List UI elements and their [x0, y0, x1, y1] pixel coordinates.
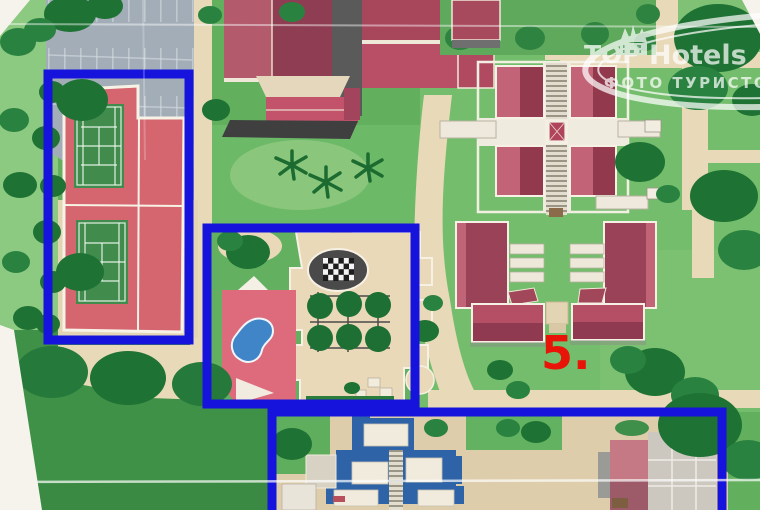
west-wing — [440, 121, 496, 138]
tree-grid-pergola — [307, 291, 391, 352]
path-east-branch — [700, 150, 760, 163]
resort-map-canvas: 5. TOP Hotels ФОТО ТУРИСТОВ — [0, 0, 760, 510]
bush-oval — [615, 420, 649, 436]
pool-leisure-area — [208, 228, 434, 405]
watermark-brand-hotels: Hotels — [649, 40, 747, 71]
walkway-bridge-lower — [546, 145, 567, 215]
building-small-north — [452, 0, 500, 40]
roof-block-br — [570, 146, 616, 196]
roof-block-bl — [496, 146, 544, 196]
south-steps — [549, 208, 563, 217]
central-plaza — [546, 302, 568, 324]
watermark-brand-top: TOP — [584, 40, 641, 69]
southeast-wing — [596, 196, 648, 209]
central-pavilion — [545, 120, 568, 144]
area-5-label: 5. — [541, 326, 590, 380]
resort-map-photo: 5. TOP Hotels ФОТО ТУРИСТОВ — [0, 0, 760, 510]
roof-block-tl — [496, 66, 544, 118]
building-a — [224, 0, 332, 82]
tennis-courts — [58, 86, 198, 338]
bench-east-1 — [645, 120, 661, 132]
walkway-bridge-upper — [546, 63, 567, 119]
giant-chessboard — [308, 249, 368, 291]
watermark-subtitle: ФОТО ТУРИСТОВ — [604, 74, 760, 92]
